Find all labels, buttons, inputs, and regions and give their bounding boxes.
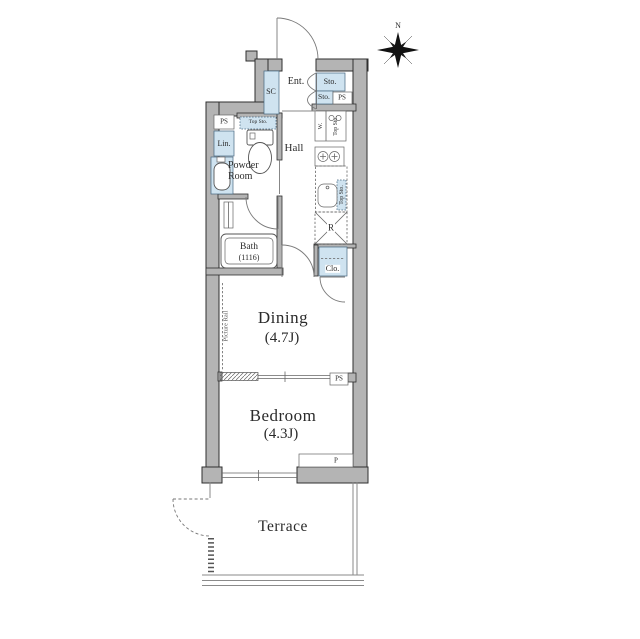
refrigerator-label: R xyxy=(327,223,335,232)
partition-hatch xyxy=(220,373,258,381)
entrance-door-swing xyxy=(277,18,318,59)
bedroom-label: Bedroom xyxy=(250,407,317,425)
compass-north-label: N xyxy=(395,22,401,30)
sliding-door xyxy=(258,376,330,379)
washer-top-storage-label: Top Sto. xyxy=(332,116,338,136)
sink xyxy=(318,184,337,207)
storage-door-upper xyxy=(308,73,317,91)
shoe-closet-label: SC xyxy=(266,88,276,96)
bath-size-label: (1116) xyxy=(239,254,260,262)
hall-label: Hall xyxy=(285,143,304,155)
dining-label: Dining xyxy=(258,309,308,327)
bath-label: Bath xyxy=(240,243,258,253)
bath-door-swing xyxy=(246,197,278,229)
entrance-label: Ent. xyxy=(288,77,304,88)
linen-label: Lin. xyxy=(217,139,230,147)
terrace-label: Terrace xyxy=(258,518,308,534)
vanity-faucet xyxy=(217,157,225,162)
powder-room-label: Powder Room xyxy=(228,161,276,182)
picture-rail-label: Picture Rail xyxy=(224,311,231,342)
washer-label: W. xyxy=(317,123,323,130)
compass-icon xyxy=(377,32,419,68)
floor-plan-canvas: N Ent. SC Sto. Sto. PS W. Top Sto. Hall … xyxy=(0,0,640,639)
sink-top-storage-label: Top Sto. xyxy=(338,185,344,205)
storage-lower-label: Sto. xyxy=(318,93,330,101)
pillar-label: P xyxy=(334,457,338,464)
closet-door-swing xyxy=(320,277,345,302)
storage-upper-label: Sto. xyxy=(324,78,337,86)
pipe-space-partition-label: PS xyxy=(335,375,343,382)
pipe-space-entrance-label: PS xyxy=(338,94,346,101)
bedroom-size-label: (4.3J) xyxy=(264,427,299,443)
dining-size-label: (4.7J) xyxy=(265,331,300,347)
pillar-box xyxy=(299,454,353,467)
dining-door-swing xyxy=(282,245,314,277)
toilet-top-storage-label: Top Sto. xyxy=(249,120,268,126)
closet-label: Clo. xyxy=(325,264,341,272)
terrace-edge-lines xyxy=(202,575,364,586)
pipe-space-left-label: PS xyxy=(220,118,228,125)
bedroom-window xyxy=(222,473,297,478)
terrace-partition-swing xyxy=(173,499,210,536)
